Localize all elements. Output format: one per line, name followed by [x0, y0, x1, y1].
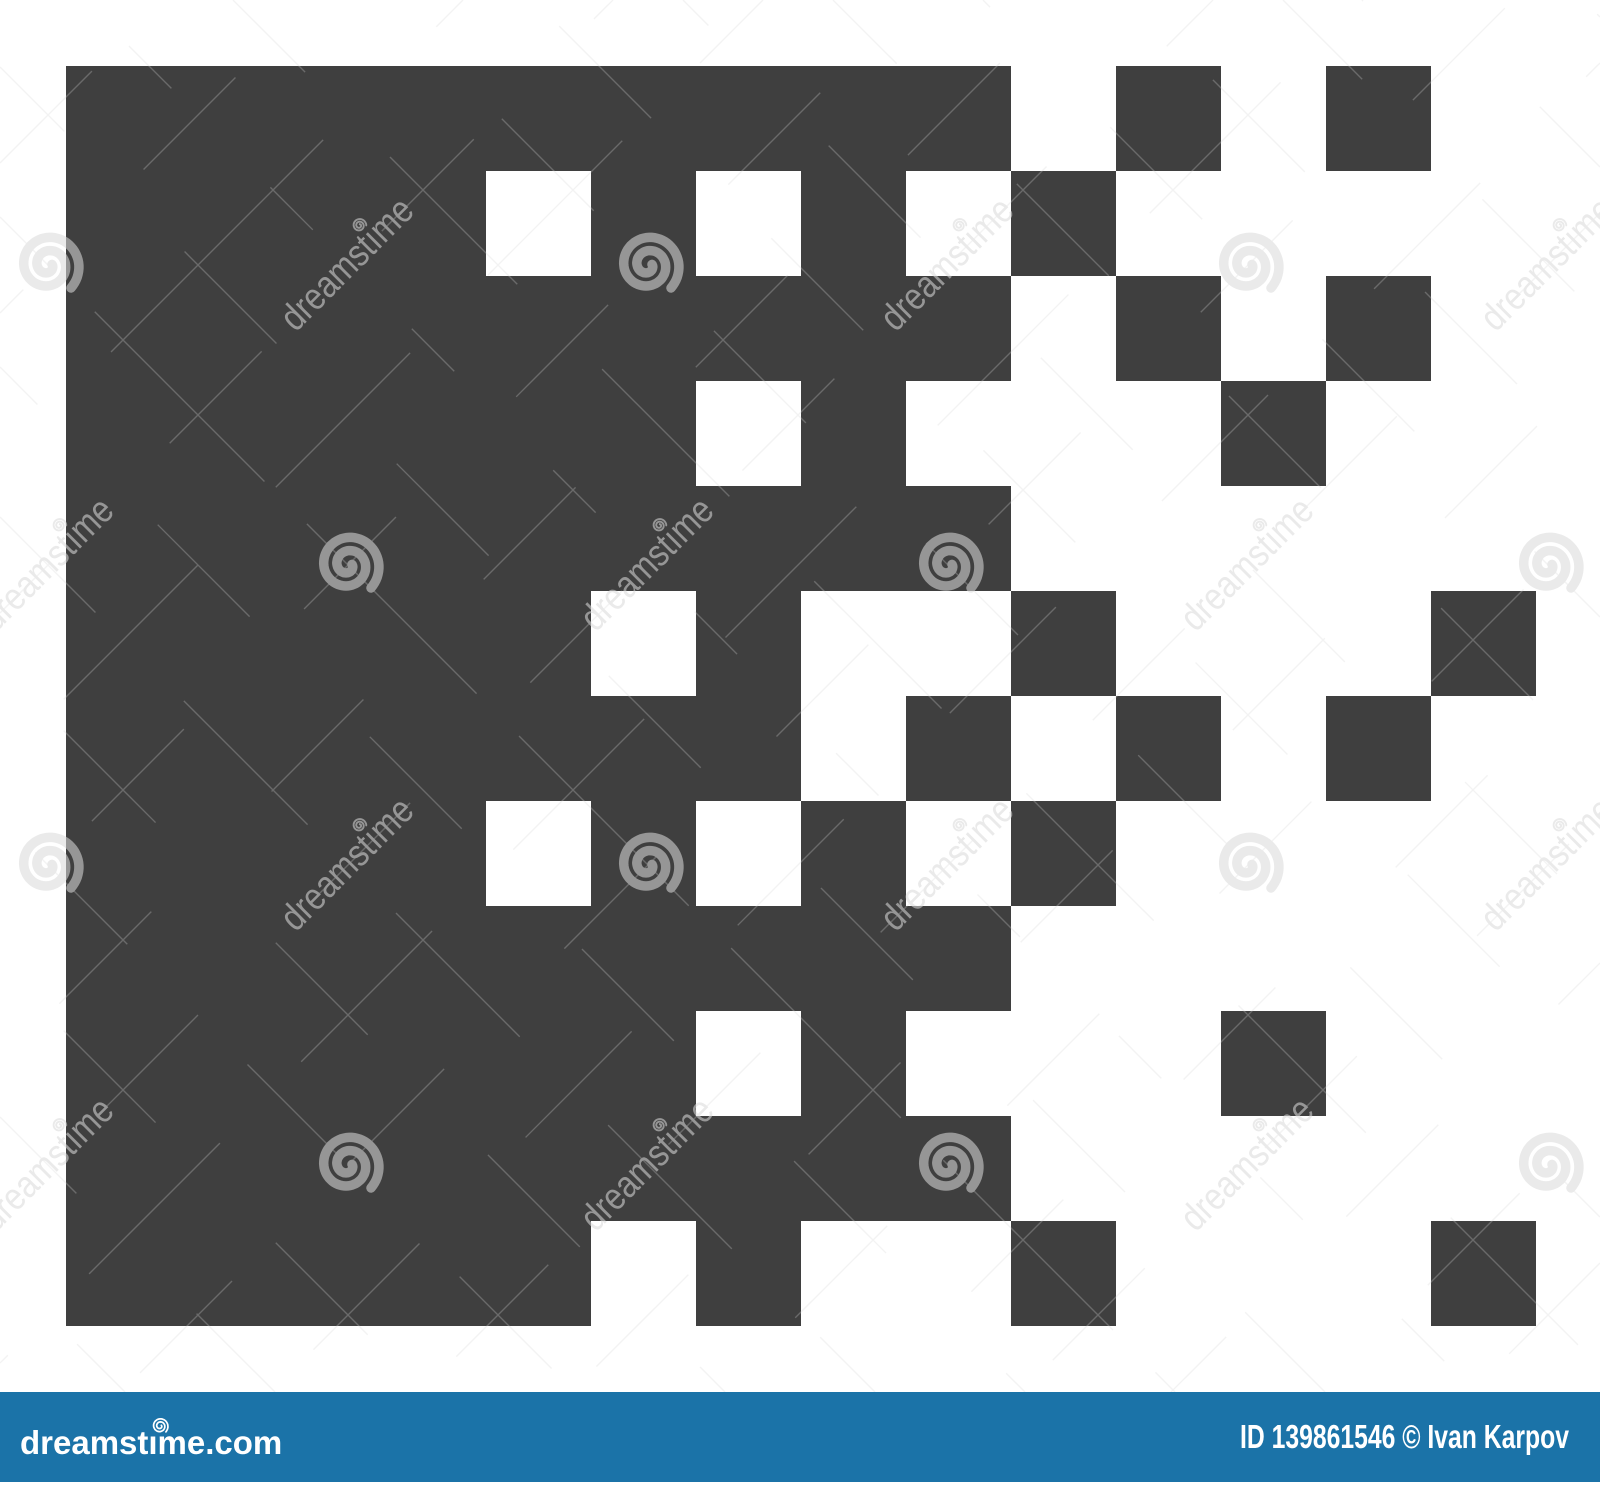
- svg-text:dreamstıme.com: dreamstıme.com: [20, 1424, 282, 1461]
- svg-text:ID 139861546 © Ivan Karpov: ID 139861546 © Ivan Karpov: [1240, 1418, 1569, 1455]
